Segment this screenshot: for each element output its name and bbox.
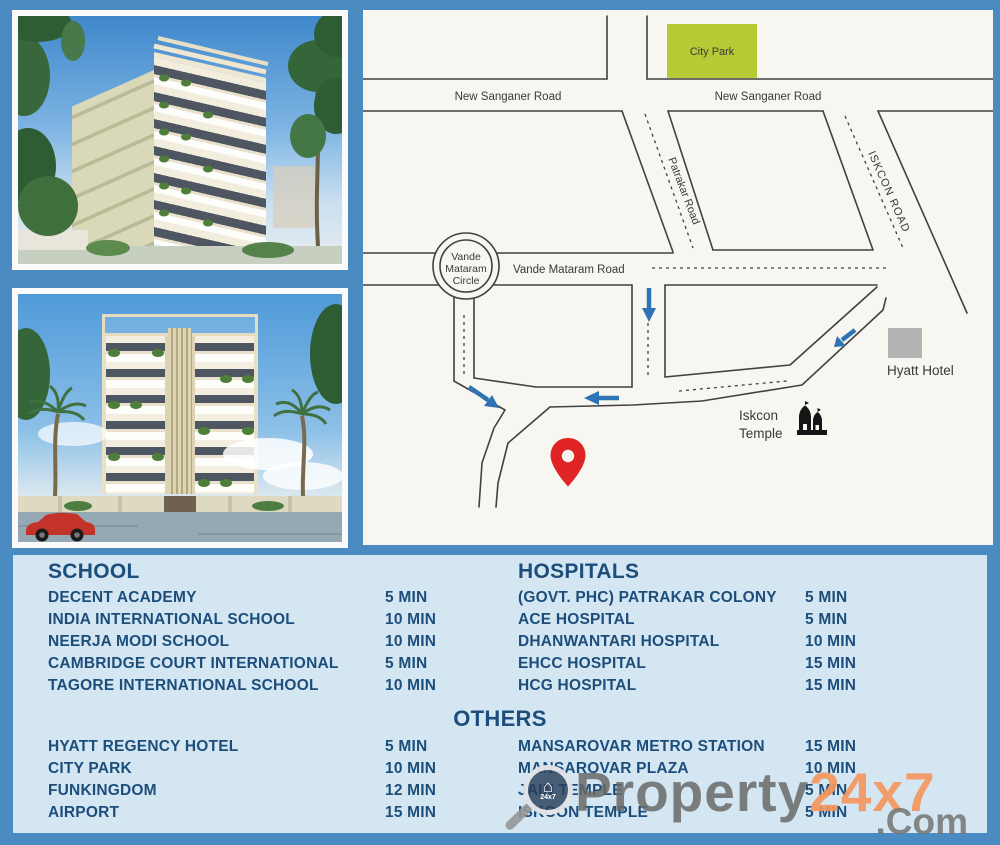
location-pin-icon bbox=[551, 438, 586, 487]
travel-time: 10 MIN bbox=[385, 675, 436, 697]
building-photo-perspective bbox=[12, 10, 348, 270]
school-list: DECENT ACADEMY5 MIN INDIA INTERNATIONAL … bbox=[48, 587, 339, 697]
list-item: AIRPORT15 MIN bbox=[48, 802, 238, 824]
vande-mataram-circle-label-3: Circle bbox=[453, 275, 480, 287]
list-item: (GOVT. PHC) PATRAKAR COLONY5 MIN bbox=[518, 587, 777, 609]
travel-time: 15 MIN bbox=[805, 675, 856, 697]
place-name: INDIA INTERNATIONAL SCHOOL bbox=[48, 611, 295, 628]
place-name: HCG HOSPITAL bbox=[518, 677, 636, 694]
place-name: DHANWANTARI HOSPITAL bbox=[518, 633, 719, 650]
road-label-vande-mataram: Vande Mataram Road bbox=[513, 264, 625, 276]
place-name: TAGORE INTERNATIONAL SCHOOL bbox=[48, 677, 319, 694]
distances-panel: SCHOOL DECENT ACADEMY5 MIN INDIA INTERNA… bbox=[13, 555, 987, 833]
list-item: ISKCON TEMPLE5 MIN bbox=[518, 802, 765, 824]
travel-time: 10 MIN bbox=[805, 631, 856, 653]
travel-time: 15 MIN bbox=[805, 736, 856, 758]
hyatt-hotel-label: Hyatt Hotel bbox=[887, 363, 954, 378]
temple-icon bbox=[797, 401, 827, 435]
building-photo-front bbox=[12, 288, 348, 548]
list-item: DHANWANTARI HOSPITAL10 MIN bbox=[518, 631, 777, 653]
travel-time: 10 MIN bbox=[385, 631, 436, 653]
travel-time: 15 MIN bbox=[805, 653, 856, 675]
place-name: NEERJA MODI SCHOOL bbox=[48, 633, 229, 650]
place-name: HYATT REGENCY HOTEL bbox=[48, 738, 238, 755]
road-label-patrakar: Patrakar Road bbox=[665, 156, 702, 227]
travel-time: 5 MIN bbox=[805, 609, 847, 631]
others-section-title: OTHERS bbox=[13, 706, 987, 732]
road-label-iskcon: ISKCON ROAD bbox=[865, 149, 912, 234]
travel-time: 15 MIN bbox=[385, 802, 436, 824]
list-item: CAMBRIDGE COURT INTERNATIONAL5 MIN bbox=[48, 653, 339, 675]
place-name: MANSAROVAR METRO STATION bbox=[518, 738, 765, 755]
travel-time: 5 MIN bbox=[805, 587, 847, 609]
travel-time: 12 MIN bbox=[385, 780, 436, 802]
road-label-new-sanganer-left: New Sanganer Road bbox=[455, 91, 562, 103]
place-name: MANSAROVAR PLAZA bbox=[518, 760, 689, 777]
place-name: CAMBRIDGE COURT INTERNATIONAL bbox=[48, 655, 339, 672]
road-label-new-sanganer-right: New Sanganer Road bbox=[715, 91, 822, 103]
place-name: CITY PARK bbox=[48, 760, 132, 777]
iskcon-temple-label-1: Iskcon bbox=[739, 408, 778, 423]
list-item: HYATT REGENCY HOTEL5 MIN bbox=[48, 736, 238, 758]
list-item: CITY PARK10 MIN bbox=[48, 758, 238, 780]
travel-time: 10 MIN bbox=[385, 609, 436, 631]
city-park-label: City Park bbox=[690, 46, 735, 58]
list-item: HCG HOSPITAL15 MIN bbox=[518, 675, 777, 697]
hospitals-section-title: HOSPITALS bbox=[518, 560, 639, 584]
place-name: (GOVT. PHC) PATRAKAR COLONY bbox=[518, 589, 777, 606]
place-name: EHCC HOSPITAL bbox=[518, 655, 646, 672]
travel-time: 5 MIN bbox=[805, 802, 847, 824]
place-name: AIRPORT bbox=[48, 804, 119, 821]
location-map: City Park New Sanganer Road New Sanganer… bbox=[363, 10, 993, 545]
tree-left bbox=[18, 16, 85, 236]
place-name: DECENT ACADEMY bbox=[48, 589, 197, 606]
property-flyer: City Park New Sanganer Road New Sanganer… bbox=[0, 0, 1000, 845]
travel-time: 10 MIN bbox=[805, 758, 856, 780]
travel-time: 5 MIN bbox=[805, 780, 847, 802]
travel-time: 10 MIN bbox=[385, 758, 436, 780]
travel-time: 5 MIN bbox=[385, 653, 427, 675]
others-list-left: HYATT REGENCY HOTEL5 MIN CITY PARK10 MIN… bbox=[48, 736, 238, 824]
place-name: JAIN TEMPLE bbox=[518, 782, 623, 799]
vande-mataram-circle-label-1: Vande bbox=[451, 251, 481, 263]
list-item: INDIA INTERNATIONAL SCHOOL10 MIN bbox=[48, 609, 339, 631]
list-item: FUNKINGDOM12 MIN bbox=[48, 780, 238, 802]
hospitals-list: (GOVT. PHC) PATRAKAR COLONY5 MIN ACE HOS… bbox=[518, 587, 777, 697]
list-item: MANSAROVAR METRO STATION15 MIN bbox=[518, 736, 765, 758]
travel-time: 5 MIN bbox=[385, 736, 427, 758]
list-item: EHCC HOSPITAL15 MIN bbox=[518, 653, 777, 675]
list-item: MANSAROVAR PLAZA10 MIN bbox=[518, 758, 765, 780]
vande-mataram-circle-label-2: Mataram bbox=[445, 263, 487, 275]
list-item: JAIN TEMPLE5 MIN bbox=[518, 780, 765, 802]
place-name: ACE HOSPITAL bbox=[518, 611, 635, 628]
iskcon-temple-label-2: Temple bbox=[739, 426, 783, 441]
list-item: NEERJA MODI SCHOOL10 MIN bbox=[48, 631, 339, 653]
school-section-title: SCHOOL bbox=[48, 560, 140, 584]
place-name: ISKCON TEMPLE bbox=[518, 804, 648, 821]
place-name: FUNKINGDOM bbox=[48, 782, 157, 799]
list-item: DECENT ACADEMY5 MIN bbox=[48, 587, 339, 609]
others-list-right: MANSAROVAR METRO STATION15 MIN MANSAROVA… bbox=[518, 736, 765, 824]
photo1-scenery bbox=[18, 16, 342, 264]
direction-arrows bbox=[469, 288, 855, 408]
hyatt-hotel-block bbox=[888, 328, 922, 358]
travel-time: 5 MIN bbox=[385, 587, 427, 609]
list-item: TAGORE INTERNATIONAL SCHOOL10 MIN bbox=[48, 675, 339, 697]
list-item: ACE HOSPITAL5 MIN bbox=[518, 609, 777, 631]
photo2-scenery bbox=[18, 294, 342, 542]
